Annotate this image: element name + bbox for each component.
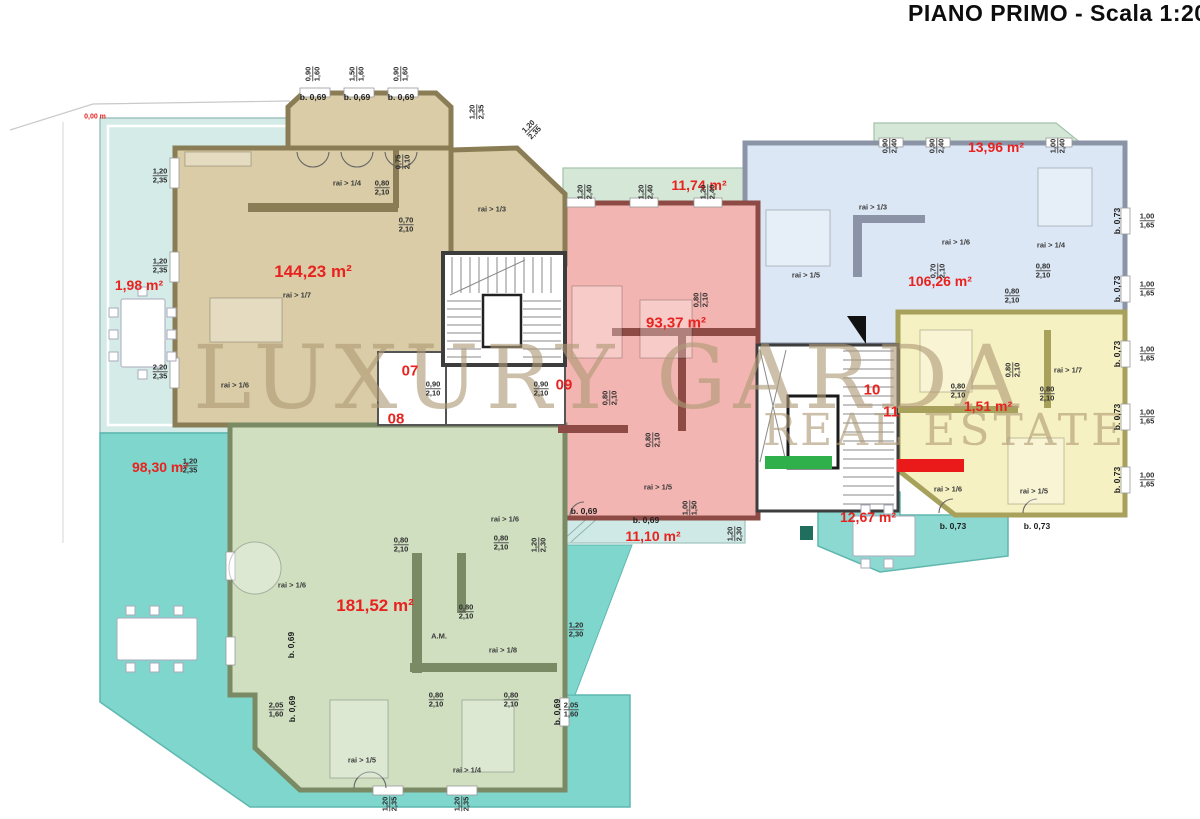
door-width-label: b. 0,69 <box>300 92 326 102</box>
rai-ratio-label: rai > 1/4 <box>453 766 481 775</box>
rai-ratio-label: rai > 1/6 <box>942 238 970 247</box>
status-bar-available <box>765 456 832 469</box>
dimension-label: 1,001,65 <box>1140 345 1155 363</box>
dimension-label: 0,902,10 <box>426 380 441 398</box>
rai-ratio-label: rai > 1/4 <box>333 179 361 188</box>
area-label: 93,37 m² <box>646 315 706 332</box>
dimension-label: 1,501,60 <box>348 67 366 82</box>
rai-ratio-label: rai > 1/6 <box>278 581 306 590</box>
dimension-label: 1,001,65 <box>1140 212 1155 230</box>
area-label: 98,30 m² <box>132 459 188 475</box>
rai-ratio-label: rai > 1/5 <box>1020 487 1048 496</box>
bed <box>330 700 388 778</box>
unit-number-label: 11 <box>883 404 899 421</box>
dimension-label: 2,051,60 <box>269 701 284 719</box>
area-label: 11,10 m² <box>625 528 680 544</box>
dimension-label: 0,802,10 <box>692 293 710 308</box>
dimension-label: 0,802,10 <box>394 536 409 554</box>
rai-ratio-label: rai > 1/5 <box>644 483 672 492</box>
dimension-label: 1,001,50 <box>681 501 699 516</box>
area-label: 1,51 m² <box>964 398 1012 414</box>
dimension-label: 0,802,10 <box>1036 262 1051 280</box>
dimension-label: 0,802,10 <box>429 691 444 709</box>
dimension-label: 1,002,40 <box>1049 139 1067 154</box>
door-width-label: b. 0,69 <box>286 632 296 658</box>
unit-07-floor <box>451 148 565 264</box>
door-width-label: b. 0,69 <box>344 92 370 102</box>
area-label: 13,96 m² <box>968 139 1024 155</box>
door-width-label: b. 0,69 <box>552 699 562 725</box>
dimension-label: 0,802,10 <box>1005 287 1020 305</box>
dimension-label: 0,802,10 <box>504 691 519 709</box>
dimension-label: 0,802,10 <box>1040 385 1055 403</box>
dimension-label: 0,802,10 <box>951 382 966 400</box>
rai-ratio-label: rai > 1/5 <box>348 756 376 765</box>
area-label: 181,52 m² <box>336 596 414 616</box>
dimension-label: 1,202,35 <box>453 797 471 812</box>
terrace-table <box>117 618 197 660</box>
dimension-label: 0,752,10 <box>394 155 412 170</box>
dimension-label: 1,001,65 <box>1140 408 1155 426</box>
door-width-label: b. 0,73 <box>1024 521 1050 531</box>
dimension-label: 2,051,60 <box>564 701 579 719</box>
unit-number-label: 09 <box>556 377 573 394</box>
unit-number-label: 07 <box>402 363 419 380</box>
unit-number-label: 08 <box>388 411 405 428</box>
rai-ratio-label: rai > 1/7 <box>1054 366 1082 375</box>
dimension-label: 1,202,40 <box>637 185 655 200</box>
dimension-label: 0,802,10 <box>459 603 474 621</box>
dimension-label: 0,902,40 <box>928 139 946 154</box>
rai-ratio-label: A.M. <box>431 632 447 641</box>
dimension-label: 2,202,35 <box>153 363 168 381</box>
rai-ratio-label: rai > 1/3 <box>478 205 506 214</box>
rai-ratio-label: rai > 1/6 <box>934 485 962 494</box>
plan-title: PIANO PRIMO - Scala 1:200 <box>908 0 1200 27</box>
planter-square <box>800 526 813 540</box>
floor-plan-canvas: LUXURY GARDA REAL ESTATE 144,23 m²181,52… <box>0 0 1200 819</box>
watermark-tagline: REAL ESTATE <box>763 405 1127 456</box>
unit-number-label: 10 <box>864 382 881 399</box>
round-table <box>229 542 281 594</box>
dimension-label: 0,902,10 <box>534 380 549 398</box>
dimension-label: 1,001,65 <box>1140 471 1155 489</box>
terrace-table <box>121 299 165 367</box>
dimension-label: 1,202,35 <box>153 257 168 275</box>
dimension-label: 1,202,40 <box>576 185 594 200</box>
kitchen-counter <box>185 152 251 166</box>
rai-ratio-label: rai > 1/6 <box>491 515 519 524</box>
dimension-label: 1,202,35 <box>153 167 168 185</box>
door-width-label: b. 0,73 <box>1112 208 1122 234</box>
status-bar-sold <box>897 459 964 472</box>
dimension-label: 1,202,30 <box>530 538 548 553</box>
door-width-label: b. 0,69 <box>388 92 414 102</box>
dimension-label: 0,702,10 <box>399 216 414 234</box>
dimension-label: 0,802,10 <box>601 391 619 406</box>
door-width-label: b. 0,73 <box>940 521 966 531</box>
door-width-label: b. 0,69 <box>633 515 659 525</box>
rai-ratio-label: rai > 1/8 <box>489 646 517 655</box>
door-width-label: b. 0,69 <box>287 696 297 722</box>
sofa <box>766 210 830 266</box>
dimension-label: 0,802,10 <box>1004 363 1022 378</box>
door-width-label: b. 0,69 <box>571 506 597 516</box>
dimension-label: 0,902,40 <box>881 139 899 154</box>
rai-ratio-label: rai > 1/5 <box>792 271 820 280</box>
dimension-label: 1,202,40 <box>699 185 717 200</box>
rai-ratio-label: rai > 1/3 <box>859 203 887 212</box>
dimension-label: 1,202,30 <box>726 527 744 542</box>
dimension-label: 0,901,60 <box>304 67 322 82</box>
area-label: 1,98 m² <box>115 277 163 293</box>
dimension-label: 0,802,10 <box>494 534 509 552</box>
area-label: 0,00 m <box>84 114 106 121</box>
rai-ratio-label: rai > 1/7 <box>283 291 311 300</box>
dimension-label: 0,901,60 <box>392 67 410 82</box>
door-width-label: b. 0,73 <box>1112 276 1122 302</box>
dimension-label: 1,001,65 <box>1140 280 1155 298</box>
area-label: 12,67 m² <box>840 509 896 525</box>
door-width-label: b. 0,73 <box>1112 467 1122 493</box>
dimension-label: 1,202,35 <box>381 797 399 812</box>
dimension-label: 1,202,30 <box>569 621 584 639</box>
door-width-label: b. 0,73 <box>1112 404 1122 430</box>
bed <box>1038 168 1092 226</box>
rai-ratio-label: rai > 1/6 <box>221 381 249 390</box>
dimension-label: 0,702,10 <box>929 264 947 279</box>
dimension-label: 1,202,35 <box>183 457 198 475</box>
dimension-label: 0,802,10 <box>375 179 390 197</box>
door-width-label: b. 0,73 <box>1112 341 1122 367</box>
rai-ratio-label: rai > 1/4 <box>1037 241 1065 250</box>
dimension-label: 0,802,10 <box>644 433 662 448</box>
bed <box>462 700 514 772</box>
area-label: 144,23 m² <box>274 262 352 282</box>
dimension-label: 1,202,35 <box>468 105 486 120</box>
